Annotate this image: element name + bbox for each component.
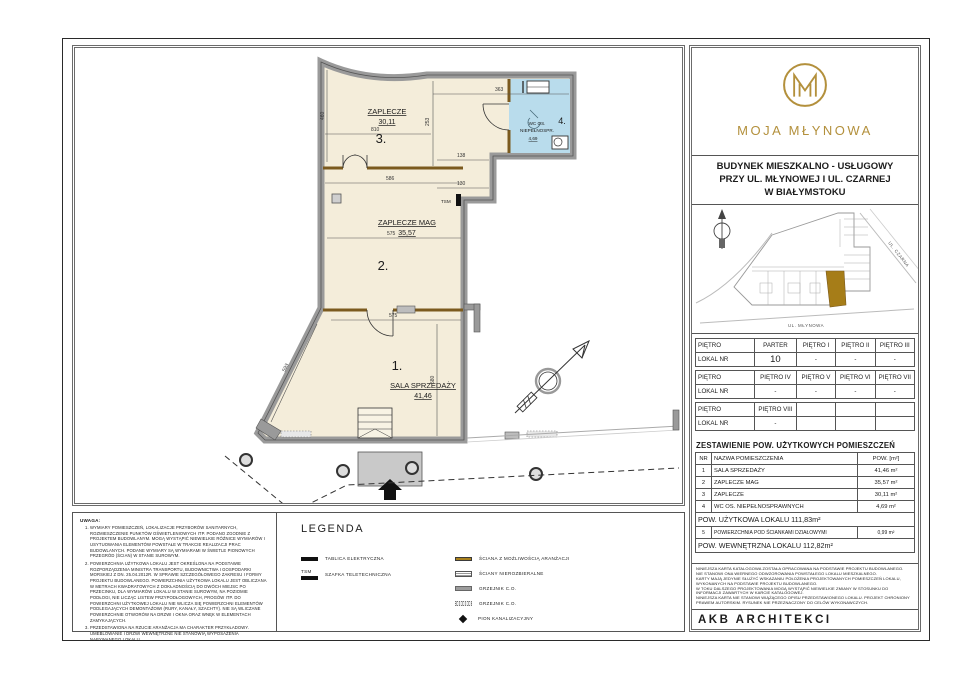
legend-item: ŚCIANA Z MOŻLIWOŚCIĄ ARANŻACJI [455,555,655,562]
area-cell: 1 [696,465,712,477]
wc-toilet [552,136,568,149]
floor-cell: PIĘTRO III [875,339,914,353]
site-plan-drawing: UL. CZARNA UL. MŁYNOWA [692,205,918,333]
floor-cell: LOKAL NR [696,353,755,367]
floor-cell [836,417,875,431]
brand-name: MOJA MŁYNOWA [692,123,918,138]
tsm-prefix: TSM [301,570,318,575]
floor-cell: - [796,353,835,367]
bollard-2 [337,465,349,477]
area-header: NAZWA POMIESZCZENIA [712,453,858,465]
area-header: POW. [m²] [858,453,915,465]
usable-area-total: POW. UŻYTKOWA LOKALU 111,83m² [696,513,915,527]
room1-area: 41,46 [414,393,432,400]
area-cell: 3 [696,489,712,501]
internal-area-total: POW. WEWNĘTRZNA LOKALU 112,82m² [696,539,915,553]
floor-cell: PIĘTRO I [796,339,835,353]
radiator-1 [281,431,311,437]
floor-cell: LOKAL NR [696,417,755,431]
area-header: NR [696,453,712,465]
street-label-mlynowa: UL. MŁYNOWA [788,323,824,328]
svg-text:586: 586 [386,176,395,182]
legend-label: GRZEJNIK C.O. [479,586,516,591]
area-cell: 41,46 m² [858,465,915,477]
building-title: BUDYNEK MIESZKALNO - USŁUGOWY PRZY UL. M… [692,156,918,205]
svg-text:575: 575 [389,313,398,319]
room1-name: SALA SPRZEDAŻY [390,381,456,390]
fixed-wall-swatch-icon [455,571,472,577]
svg-text:460: 460 [320,111,326,120]
radiator2-swatch-icon [455,601,472,606]
floor-cell: PIĘTRO VI [836,371,875,385]
floor-cell: - [836,385,875,399]
floor-lokal-tables: PIĘTRO PARTER PIĘTRO I PIĘTRO II PIĘTRO … [692,334,918,436]
site-road-bottom [700,309,914,323]
site-road-diag2 [870,209,918,271]
legend-label: SZAFKA TELETECHNICZNA [325,572,391,577]
legend-item: GRZEJNIK C.O. [455,585,655,592]
legend-panel: LEGENDA TABLICA ELEKTRYCZNA TSM SZAFKA T… [277,513,684,631]
property-dashed-line [225,456,679,503]
floor-cell [796,403,835,417]
area-cell: ZAPLECZE [712,489,858,501]
note-item: PRZEDSTAWIONA NA RZUCIE ARANŻACJA MA CHA… [90,625,269,642]
floor-plan-drawing: TSM 363 253 810 46 [75,48,682,503]
entrance-mat [358,408,392,438]
building-title-line: W BIAŁYMSTOKU [694,187,916,200]
room2-area: 35,57 [398,230,416,237]
facade-post [673,410,679,430]
electric-box [332,194,341,203]
wall-stub-2 [474,304,480,332]
area-row: 2 ZAPLECZE MAG 35,57 m² [696,477,915,489]
north-symbol-icon [515,341,589,413]
floor-cell: PIĘTRO [696,403,755,417]
brand-monogram-icon [774,54,836,116]
disclaimer-line: PRAWEM AUTORSKIM. RYSUNEK NIE PRZEZNACZO… [696,601,914,606]
floor-cell: PIĘTRO IV [755,371,797,385]
area-table-title: ZESTAWIENIE POW. UŻYTKOWYCH POMIESZCZEŃ [696,441,914,450]
area-cell: 4,69 m² [858,501,915,513]
partition-lintel [397,306,415,313]
area-cell: 2 [696,477,712,489]
floor-cell: PIĘTRO [696,339,755,353]
legend-label: ŚCIANY NIEROZBIERALNE [479,571,544,576]
floor-table-1: PIĘTRO PARTER PIĘTRO I PIĘTRO II PIĘTRO … [695,338,915,367]
legend-label: ŚCIANA Z MOŻLIWOŚCIĄ ARANŻACJI [479,556,569,561]
legend-label: PION KANALIZACYJNY [478,616,533,621]
area-cell: 0,99 m² [858,527,915,539]
area-table: NR NAZWA POMIESZCZENIA POW. [m²] 1 SALA … [695,452,915,553]
title-block: MOJA MŁYNOWA BUDYNEK MIESZKALNO - USŁUGO… [689,45,921,632]
site-plan-thumbnail: UL. CZARNA UL. MŁYNOWA [692,205,918,334]
floor-cell: - [755,417,797,431]
lokal-number-cell: 10 [755,353,797,367]
floor-table-3: PIĘTRO PIĘTRO VIII LOKAL NR - [695,402,915,431]
sewage-riser-swatch-icon [459,614,467,622]
floor-table-2: PIĘTRO PIĘTRO IV PIĘTRO V PIĘTRO VI PIĘT… [695,370,915,399]
legend-left-column: TABLICA ELEKTRYCZNA TSM SZAFKA TELETECHN… [301,555,461,588]
floor-cell: - [875,353,914,367]
room1-number: 1. [392,358,403,373]
tsm-cabinet [456,194,461,206]
legend-item: ŚCIANY NIEROZBIERALNE [455,570,655,577]
floor-cell [875,417,914,431]
area-cell: 30,11 m² [858,489,915,501]
floor-cell: PIĘTRO V [796,371,835,385]
floor-plan-area: TSM 363 253 810 46 [72,45,685,506]
tsm-swatch-icon: TSM [301,570,318,580]
disclaimer: NINIEJSZA KARTA KATALOGOWA ZOSTAŁA OPRAC… [692,563,918,609]
area-row: 4 WC OS. NIEPEŁNOSPRAWNYCH 4,69 m² [696,501,915,513]
floor-cell: PIĘTRO VII [875,371,914,385]
note-item: WYMIARY POMIESZCZEŃ, LOKALIZACJE PRZYBOR… [90,525,269,559]
building-title-line: PRZY UL. MŁYNOWEJ I UL. CZARNEJ [694,174,916,187]
tsm-label: TSM [441,199,451,204]
floor-cell: LOKAL NR [696,385,755,399]
floor-cell [875,403,914,417]
svg-text:130: 130 [457,181,466,187]
svg-text:138: 138 [457,153,466,159]
floor-cell: PIĘTRO VIII [755,403,797,417]
svg-text:253: 253 [425,117,431,126]
electric-board-swatch-icon [301,557,318,561]
area-cell: 4 [696,501,712,513]
drawing-sheet: { "brand": { "monogram": "M", "name": "M… [0,0,960,679]
notes-panel: UWAGA: WYMIARY POMIESZCZEŃ, LOKALIZACJE … [73,513,277,631]
wc-area: 4,69 [529,136,538,141]
legend-item: TSM SZAFKA TELETECHNICZNA [301,570,461,580]
room3-name: ZAPLECZE [368,107,407,116]
area-cell: ZAPLECZE MAG [712,477,858,489]
area-cell: 5 [696,527,712,539]
radiator-swatch-icon [455,586,472,591]
bollard-1 [240,454,252,466]
floor-cell [836,403,875,417]
legend-right-column: ŚCIANA Z MOŻLIWOŚCIĄ ARANŻACJI ŚCIANY NI… [455,555,655,630]
floor-cell: PARTER [755,339,797,353]
legend-item: GRZEJNIK C.O. [455,600,655,607]
brand-logo: MOJA MŁYNOWA [692,48,918,156]
bollard-4 [530,468,542,480]
note-item: POWIERZCHNIA UŻYTKOWA LOKALU JEST OKREŚL… [90,561,269,623]
area-row: 3 ZAPLECZE 30,11 m² [696,489,915,501]
floor-cell: PIĘTRO [696,371,755,385]
legend-item: TABLICA ELEKTRYCZNA [301,555,461,562]
floor-cell: - [755,385,797,399]
site-north-arrow-icon [714,209,730,249]
room3-number: 3. [376,131,387,146]
bollard-3 [406,462,418,474]
notes-list: WYMIARY POMIESZCZEŃ, LOKALIZACJE PRZYBOR… [80,525,269,642]
area-cell: POWIERZCHNIA POD ŚCIANKAMI DZIAŁOWYMI [712,527,858,539]
notes-legend-strip: UWAGA: WYMIARY POMIESZCZEŃ, LOKALIZACJE … [72,512,685,632]
legend-title: LEGENDA [301,523,684,535]
room2-number: 2. [378,258,389,273]
area-summary: ZESTAWIENIE POW. UŻYTKOWYCH POMIESZCZEŃ … [692,436,918,555]
room2-name: ZAPLECZE MAG [378,218,436,227]
area-cell: SALA SPRZEDAŻY [712,465,858,477]
floor-cell [796,417,835,431]
floor-cell: - [836,353,875,367]
title-block-spacer [692,555,918,563]
area-row: 1 SALA SPRZEDAŻY 41,46 m² [696,465,915,477]
studio-name: AKB ARCHITEKCI [692,609,918,629]
floor-cell: - [796,385,835,399]
floor-cell: - [875,385,914,399]
svg-text:363: 363 [495,87,504,93]
legend-label: GRZEJNIK C.O. [479,601,516,606]
area-cell: WC OS. NIEPEŁNOSPRAWNYCH [712,501,858,513]
area-cell: 35,57 m² [858,477,915,489]
wc-number: 4. [558,116,566,126]
notes-heading: UWAGA: [80,518,269,523]
svg-text:575: 575 [387,231,396,237]
area-row-partitions: 5 POWIERZCHNIA POD ŚCIANKAMI DZIAŁOWYMI … [696,527,915,539]
arrangeable-wall-swatch-icon [455,557,472,561]
wc-name-1: WC OS. [529,121,546,126]
floor-cell: PIĘTRO II [836,339,875,353]
room3-area: 30,11 [379,119,396,126]
legend-item: PION KANALIZACYJNY [455,615,655,622]
building-title-line: BUDYNEK MIESZKALNO - USŁUGOWY [694,161,916,174]
teletech-cabinet-swatch-icon [301,576,318,580]
wc-name-2: NIEPEŁNOSPR. [520,128,554,133]
legend-label: TABLICA ELEKTRYCZNA [325,556,384,561]
